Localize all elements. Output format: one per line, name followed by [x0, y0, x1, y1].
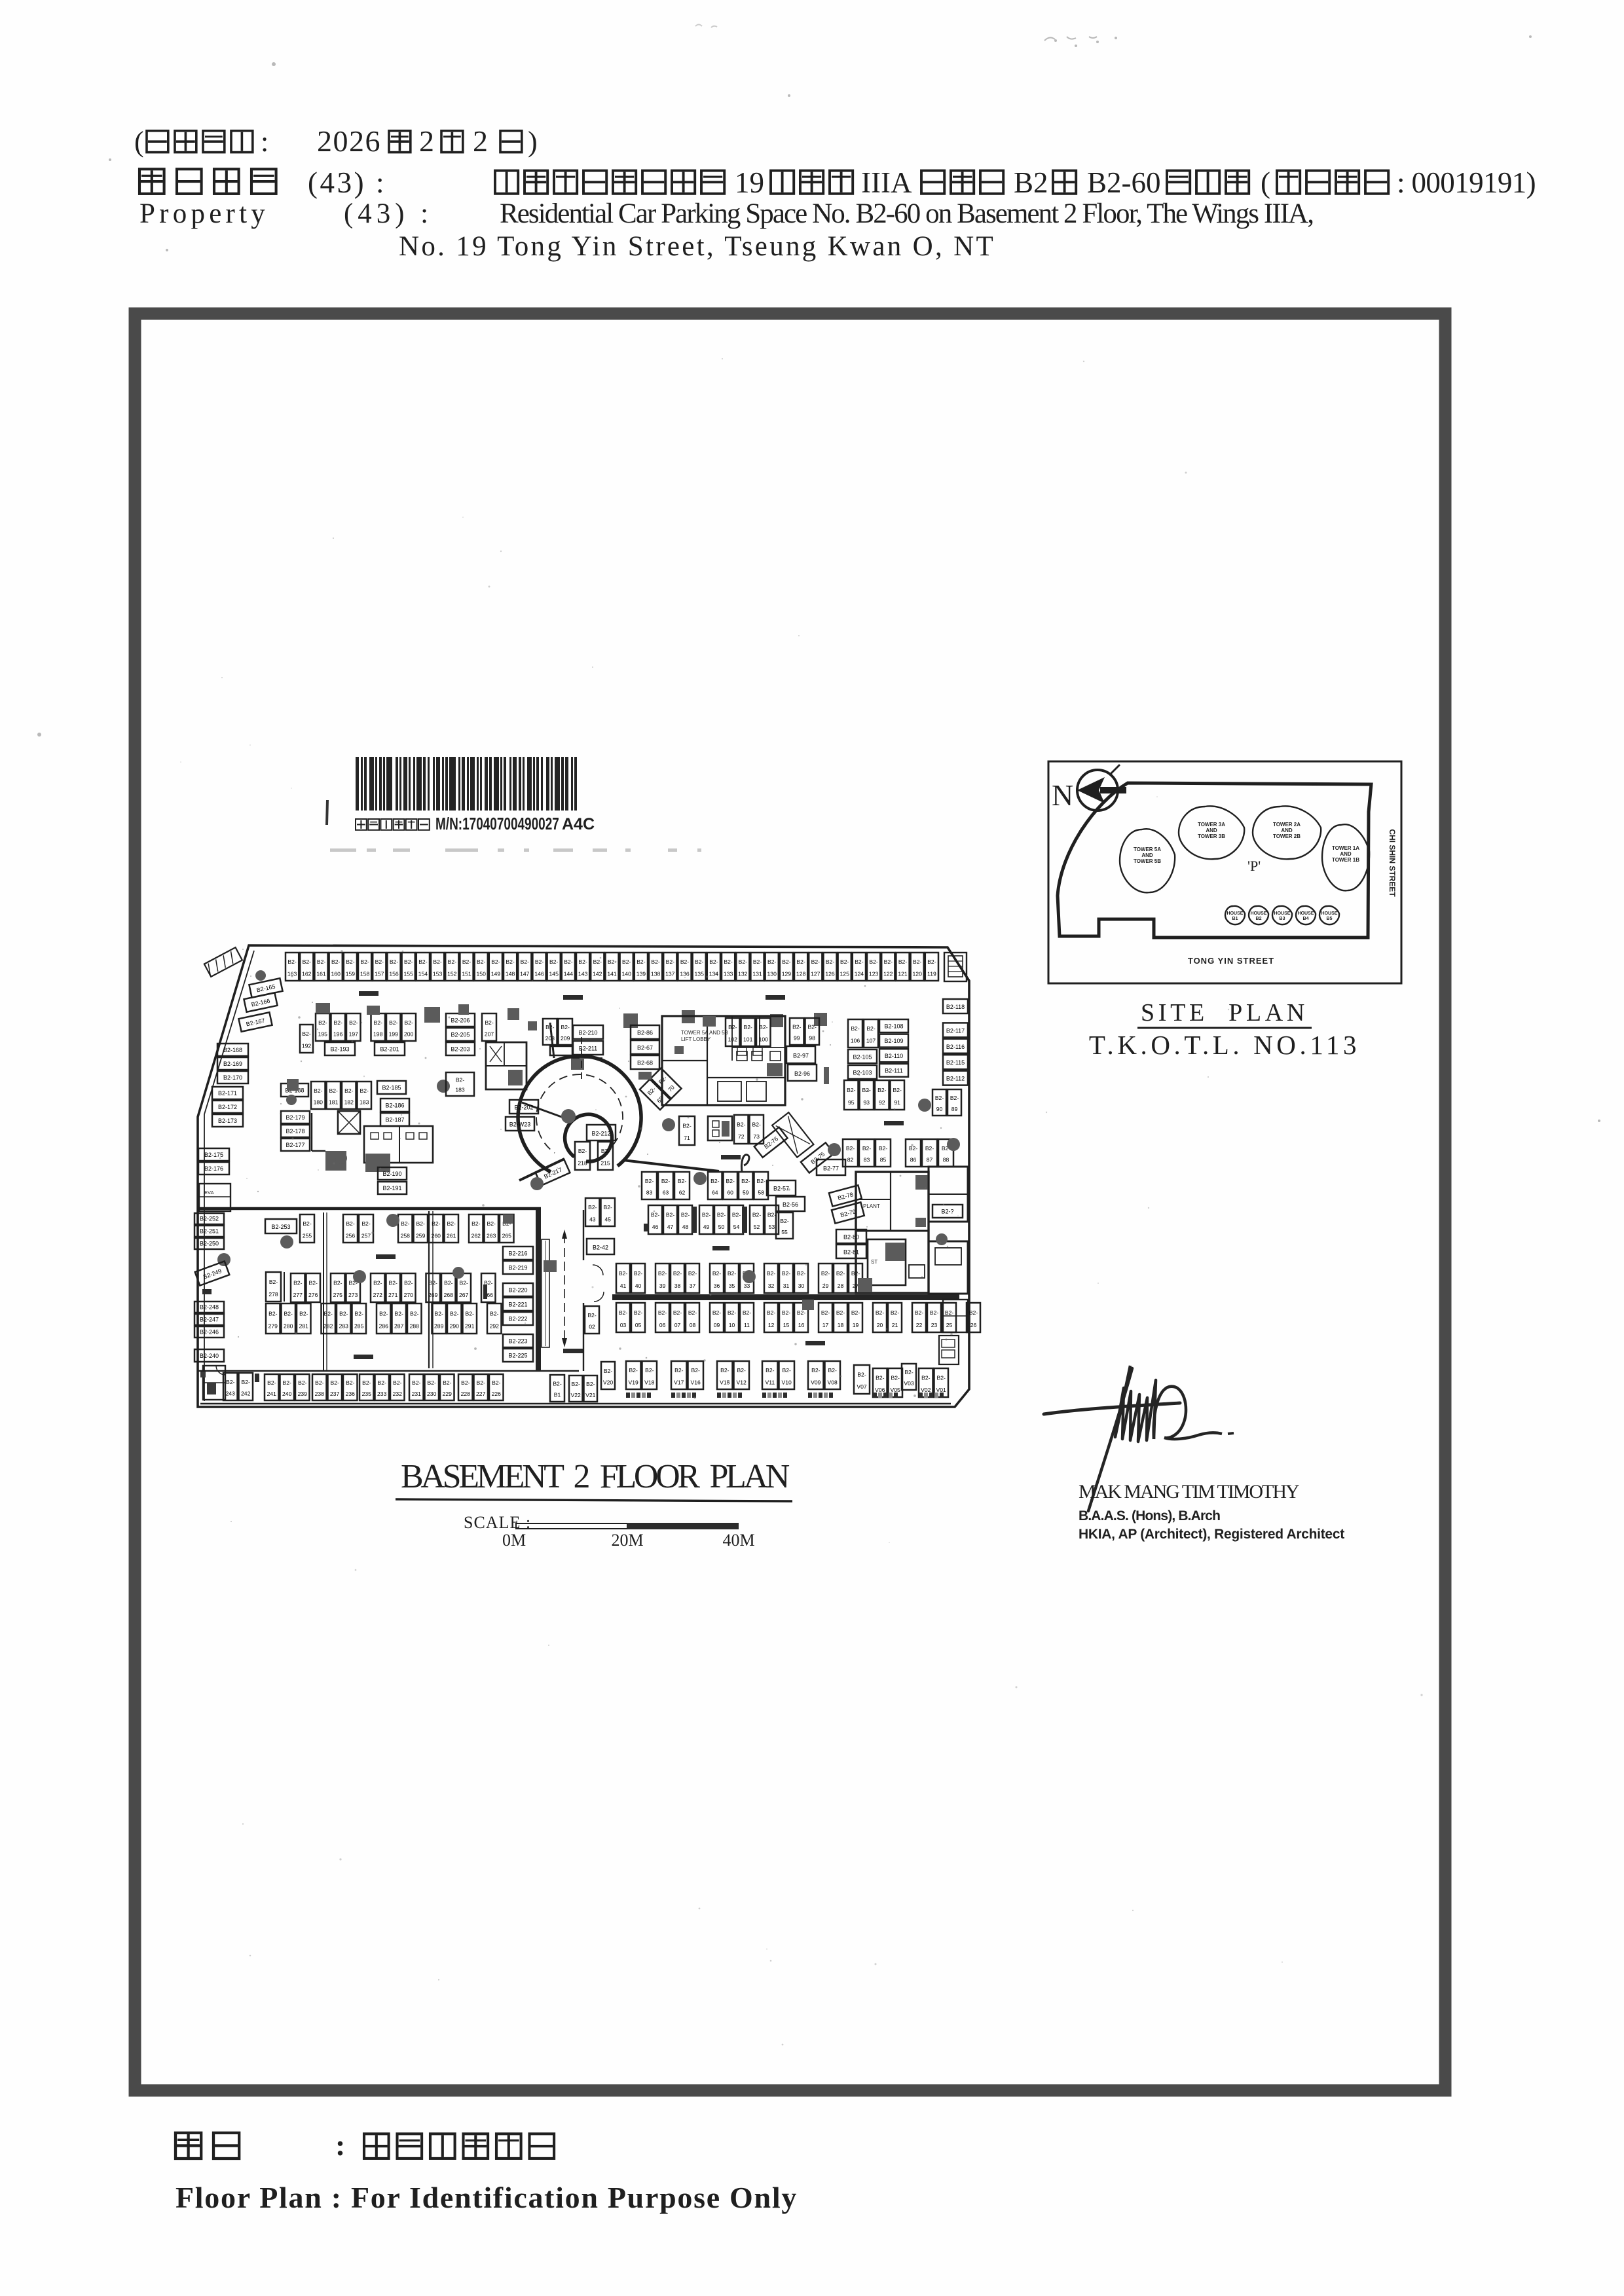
svg-text:B2-: B2-: [869, 958, 878, 965]
svg-text:272: 272: [373, 1292, 383, 1298]
svg-text:181: 181: [329, 1099, 339, 1105]
svg-text:B2-173: B2-173: [218, 1118, 237, 1124]
svg-text:B2-: B2-: [374, 1019, 383, 1026]
svg-text:B2-: B2-: [710, 1178, 720, 1184]
svg-text:126: 126: [825, 970, 835, 977]
svg-text:55: 55: [781, 1229, 788, 1235]
svg-text:146: 146: [534, 970, 544, 977]
svg-text:B2-253: B2-253: [271, 1224, 290, 1230]
svg-text:238: 238: [315, 1391, 325, 1397]
svg-text:B2-117: B2-117: [946, 1027, 965, 1034]
svg-text:72: 72: [738, 1133, 745, 1140]
svg-text:B2-: B2-: [909, 1145, 918, 1152]
svg-text:B2-: B2-: [634, 1309, 643, 1316]
svg-text:119: 119: [927, 970, 936, 977]
svg-text:B2-: B2-: [395, 1310, 404, 1317]
svg-text:B2-: B2-: [443, 1379, 452, 1386]
svg-text:B2-: B2-: [433, 958, 442, 965]
svg-text:132: 132: [738, 970, 748, 977]
svg-text:2: 2: [473, 124, 488, 158]
svg-text:BASEMENT 2 FLOOR PLAN: BASEMENT 2 FLOOR PLAN: [401, 1458, 790, 1495]
svg-text:B2-: B2-: [456, 1076, 465, 1083]
svg-text:B2-115: B2-115: [946, 1059, 965, 1066]
svg-text:B2-: B2-: [390, 958, 399, 965]
svg-text:B2-: B2-: [821, 1270, 830, 1277]
svg-text:B2-: B2-: [847, 1087, 856, 1093]
svg-text:140: 140: [622, 970, 632, 977]
svg-text:B2-: B2-: [302, 1030, 311, 1037]
svg-text:B2-: B2-: [674, 1367, 684, 1374]
svg-text:B2-108: B2-108: [884, 1023, 903, 1030]
svg-text:06: 06: [659, 1322, 666, 1328]
svg-text:B2-: B2-: [876, 1375, 885, 1381]
svg-text:B2-: B2-: [712, 1270, 722, 1277]
svg-text:TOWER 3A: TOWER 3A: [1198, 822, 1225, 828]
svg-text:48: 48: [682, 1224, 689, 1230]
svg-text:V10: V10: [782, 1379, 792, 1385]
svg-text:B2-: B2-: [593, 958, 602, 965]
svg-text:130: 130: [767, 970, 777, 977]
svg-text:B2-96: B2-96: [794, 1070, 810, 1077]
svg-text:IIIA: IIIA: [861, 166, 912, 199]
svg-text:(: (: [1261, 166, 1270, 199]
svg-text:218: 218: [578, 1159, 587, 1166]
svg-text:TOWER 1A: TOWER 1A: [1332, 845, 1359, 851]
svg-text:262: 262: [471, 1232, 481, 1239]
svg-text:V07: V07: [857, 1383, 867, 1390]
svg-text:B2-: B2-: [450, 1310, 459, 1317]
svg-text:32: 32: [768, 1283, 775, 1289]
svg-text:120: 120: [913, 970, 923, 977]
svg-text:261: 261: [447, 1232, 456, 1239]
svg-text:B2-: B2-: [688, 1270, 697, 1277]
svg-text:B2-: B2-: [743, 1309, 752, 1316]
svg-text:156: 156: [389, 970, 399, 977]
svg-text:278: 278: [268, 1291, 278, 1298]
svg-text:B2-: B2-: [471, 1220, 481, 1227]
svg-text:47: 47: [667, 1224, 674, 1230]
svg-text:B2: B2: [1256, 917, 1262, 921]
svg-text:B2-: B2-: [678, 1178, 687, 1184]
svg-text:122: 122: [883, 970, 893, 977]
svg-text:Residential Car Parking Space: Residential Car Parking Space No. B2-60 …: [500, 198, 1313, 229]
svg-text:133: 133: [724, 970, 733, 977]
svg-text:B2-118: B2-118: [946, 1004, 965, 1010]
svg-text:235: 235: [362, 1391, 372, 1397]
svg-text:B2-: B2-: [462, 958, 471, 965]
svg-text:17: 17: [822, 1322, 829, 1328]
svg-text:285: 285: [354, 1323, 364, 1330]
svg-text:B2-: B2-: [588, 1204, 597, 1211]
svg-text:101: 101: [743, 1036, 753, 1042]
svg-text:B2-68: B2-68: [637, 1059, 653, 1066]
svg-text:B2-: B2-: [284, 1310, 293, 1317]
svg-text:141: 141: [607, 970, 617, 977]
svg-text:B2-112: B2-112: [946, 1076, 965, 1082]
svg-text:83: 83: [646, 1189, 653, 1195]
svg-text:139: 139: [637, 970, 646, 977]
svg-text:B2-: B2-: [444, 1280, 453, 1286]
svg-text:B2-: B2-: [666, 1212, 675, 1218]
svg-text:HOUSE: HOUSE: [1298, 911, 1314, 916]
svg-text:B2-: B2-: [506, 958, 515, 965]
svg-text:182: 182: [344, 1099, 354, 1105]
svg-text:B2-: B2-: [728, 1270, 737, 1277]
svg-text:92: 92: [879, 1099, 885, 1106]
svg-text:B2-222: B2-222: [508, 1316, 527, 1322]
svg-text:277: 277: [293, 1292, 303, 1298]
svg-text:B2-: B2-: [362, 1379, 371, 1386]
svg-text:B2-: B2-: [891, 1375, 900, 1381]
svg-text::: :: [261, 126, 268, 158]
svg-text:B2-: B2-: [752, 1212, 762, 1218]
svg-text:B2-212: B2-212: [591, 1130, 610, 1137]
svg-text:B2-: B2-: [877, 1087, 887, 1093]
svg-text:B2-: B2-: [826, 958, 835, 965]
svg-text:145: 145: [549, 970, 559, 977]
svg-text:B2-: B2-: [410, 1310, 419, 1317]
svg-text:290: 290: [450, 1323, 460, 1330]
svg-text:B2-97: B2-97: [793, 1053, 809, 1059]
svg-text:26: 26: [970, 1322, 977, 1328]
svg-text:54: 54: [733, 1224, 740, 1230]
svg-text:B2-57: B2-57: [773, 1186, 789, 1192]
svg-text:259: 259: [416, 1232, 426, 1239]
svg-text:B2-: B2-: [846, 1145, 855, 1152]
svg-text:AND: AND: [1141, 852, 1153, 858]
svg-text:281: 281: [299, 1323, 309, 1330]
svg-text:B2-: B2-: [797, 1309, 806, 1316]
svg-text:B2-168: B2-168: [223, 1047, 242, 1053]
svg-text:B2-246: B2-246: [200, 1329, 219, 1336]
svg-text:B2-216: B2-216: [508, 1250, 527, 1257]
svg-text:B2-: B2-: [564, 958, 573, 965]
svg-text:198: 198: [373, 1030, 383, 1037]
svg-text:TOWER 5A: TOWER 5A: [1134, 847, 1161, 852]
svg-text:B2-: B2-: [283, 1379, 292, 1386]
svg-text:Property: Property: [139, 198, 269, 229]
svg-text:B2-: B2-: [717, 1212, 726, 1218]
svg-text:B2-: B2-: [578, 1148, 587, 1154]
svg-text:B2-: B2-: [242, 1379, 251, 1385]
svg-text:263: 263: [487, 1232, 496, 1239]
svg-text:B2-: B2-: [797, 1270, 806, 1277]
svg-text:B2-: B2-: [269, 1279, 278, 1285]
svg-text:B2-187: B2-187: [385, 1117, 404, 1123]
svg-text:102: 102: [728, 1036, 738, 1042]
svg-text:B2-: B2-: [666, 958, 675, 965]
svg-text:B2-: B2-: [491, 958, 500, 965]
svg-text:30: 30: [798, 1283, 805, 1289]
svg-text:128: 128: [796, 970, 806, 977]
svg-text:B2-: B2-: [737, 1121, 746, 1128]
svg-text:B2-: B2-: [329, 1087, 339, 1094]
svg-text:N: N: [1052, 778, 1073, 812]
svg-text:V06: V06: [875, 1387, 885, 1393]
svg-text:B2-: B2-: [851, 1025, 860, 1032]
svg-text:B2-: B2-: [331, 958, 341, 965]
svg-text:B2-: B2-: [435, 1310, 444, 1317]
svg-text:SITE PLAN: SITE PLAN: [1141, 999, 1308, 1027]
svg-text:228: 228: [461, 1391, 471, 1397]
svg-text:243: 243: [226, 1390, 236, 1396]
svg-text:B2-: B2-: [709, 958, 718, 965]
svg-text:B2-: B2-: [792, 1023, 802, 1030]
svg-text:B2-: B2-: [796, 958, 805, 965]
svg-text:B2-205: B2-205: [451, 1032, 470, 1038]
svg-text:B2-: B2-: [375, 958, 384, 965]
svg-text:268: 268: [444, 1292, 454, 1298]
svg-text:B2-248: B2-248: [200, 1304, 219, 1311]
svg-text:20: 20: [877, 1322, 883, 1328]
svg-text:B2-: B2-: [428, 1379, 437, 1386]
svg-text:B2-: B2-: [879, 1145, 888, 1152]
svg-text:241: 241: [267, 1391, 277, 1397]
svg-text:B2-: B2-: [601, 1148, 610, 1154]
svg-text:41: 41: [620, 1283, 627, 1289]
svg-text:B2-: B2-: [915, 1309, 924, 1316]
svg-text:B2: B2: [1014, 166, 1048, 199]
svg-text:B2-177: B2-177: [286, 1142, 304, 1148]
svg-text:20M: 20M: [611, 1531, 643, 1550]
svg-text:B2-: B2-: [898, 958, 908, 965]
svg-text:B2-: B2-: [331, 1379, 340, 1386]
svg-text:B2-: B2-: [767, 1270, 776, 1277]
svg-text:B2-: B2-: [448, 958, 457, 965]
svg-text:B2-: B2-: [226, 1379, 235, 1385]
svg-text:B2-221: B2-221: [508, 1302, 527, 1308]
svg-text:144: 144: [564, 970, 574, 977]
svg-text:288: 288: [410, 1323, 420, 1330]
svg-text:TONG YIN STREET: TONG YIN STREET: [1188, 956, 1274, 966]
svg-text:TOWER 2A: TOWER 2A: [1273, 822, 1301, 828]
svg-text:B2-60: B2-60: [1087, 166, 1161, 199]
svg-text:B2-: B2-: [293, 1280, 303, 1286]
svg-text:V20: V20: [603, 1379, 614, 1385]
svg-text:71: 71: [684, 1135, 690, 1141]
svg-text:V01: V01: [936, 1387, 947, 1393]
svg-text:B2-252: B2-252: [200, 1216, 219, 1222]
svg-text:B2-: B2-: [334, 1019, 343, 1026]
svg-text:86: 86: [910, 1156, 917, 1163]
svg-text:B2-: B2-: [619, 1309, 628, 1316]
svg-text:82: 82: [847, 1156, 854, 1163]
svg-text:B2-: B2-: [645, 1178, 654, 1184]
svg-text:60: 60: [727, 1189, 733, 1195]
svg-text:B2-: B2-: [477, 1379, 486, 1386]
svg-text:B2-111: B2-111: [885, 1067, 903, 1074]
svg-text:B2-176: B2-176: [204, 1165, 223, 1172]
svg-text:05: 05: [635, 1322, 642, 1328]
svg-text:B2-: B2-: [477, 958, 486, 965]
svg-text:V08: V08: [828, 1379, 838, 1385]
svg-text:B2-: B2-: [937, 1375, 946, 1381]
svg-text:157: 157: [375, 970, 384, 977]
svg-text:B2-: B2-: [891, 1309, 900, 1316]
svg-text:209: 209: [561, 1035, 570, 1042]
svg-text:B2-193: B2-193: [330, 1046, 349, 1053]
svg-text:40M: 40M: [722, 1531, 754, 1550]
svg-text:B2-: B2-: [811, 958, 821, 965]
svg-text:B2-: B2-: [267, 1379, 276, 1386]
svg-text:155: 155: [404, 970, 414, 977]
svg-text:29: 29: [822, 1283, 829, 1289]
svg-text:B2-: B2-: [309, 1280, 318, 1286]
svg-text:129: 129: [782, 970, 792, 977]
svg-text:07: 07: [674, 1322, 681, 1328]
svg-text:B2-206: B2-206: [451, 1017, 470, 1024]
svg-text:B2-: B2-: [724, 958, 733, 965]
svg-text:B2-: B2-: [767, 958, 777, 965]
svg-text:287: 287: [394, 1323, 404, 1330]
svg-text:A4C: A4C: [562, 815, 595, 833]
svg-text:63: 63: [663, 1189, 669, 1195]
svg-text:150: 150: [477, 970, 487, 977]
svg-text:B2-: B2-: [744, 1024, 753, 1030]
svg-text:100: 100: [759, 1036, 769, 1042]
svg-text:151: 151: [462, 970, 471, 977]
svg-text:158: 158: [360, 970, 370, 977]
svg-text:V03: V03: [904, 1380, 914, 1387]
svg-text:230: 230: [427, 1391, 437, 1397]
svg-text:Floor Plan : For Identificatio: Floor Plan : For Identification Purpose …: [175, 2181, 798, 2214]
svg-text:B2-: B2-: [373, 1280, 382, 1286]
svg-text:B2-: B2-: [741, 1178, 750, 1184]
svg-text:89: 89: [951, 1106, 958, 1112]
svg-text:B2-: B2-: [851, 1309, 860, 1316]
svg-text:B2-: B2-: [317, 958, 326, 965]
svg-text:B2-: B2-: [688, 1309, 697, 1316]
svg-text:B2-: B2-: [315, 1379, 324, 1386]
svg-text:B2-: B2-: [866, 1025, 876, 1032]
svg-text:289: 289: [434, 1323, 444, 1330]
svg-text:B2-: B2-: [461, 1379, 470, 1386]
svg-text:V09: V09: [811, 1379, 821, 1385]
svg-text:B2-179: B2-179: [286, 1114, 304, 1121]
svg-text:HOUSE: HOUSE: [1274, 911, 1291, 916]
svg-text:B2-: B2-: [862, 1145, 872, 1152]
svg-text:B2-: B2-: [535, 958, 544, 965]
svg-text:TOWER 2B: TOWER 2B: [1273, 833, 1301, 839]
svg-text:B2-: B2-: [840, 958, 849, 965]
svg-text:V15: V15: [720, 1379, 730, 1385]
svg-text:B2-: B2-: [333, 1280, 342, 1286]
svg-text:25: 25: [946, 1322, 953, 1328]
svg-text:19: 19: [853, 1322, 859, 1328]
svg-text:16: 16: [798, 1322, 805, 1328]
svg-text:271: 271: [388, 1292, 398, 1298]
svg-text:2026: 2026: [317, 124, 381, 158]
svg-text:B2-: B2-: [927, 958, 936, 965]
svg-text:B2-: B2-: [389, 1019, 398, 1026]
svg-text:CHI SHIN STREET: CHI SHIN STREET: [1388, 829, 1397, 897]
svg-text:183: 183: [360, 1099, 369, 1105]
svg-text:B2-: B2-: [695, 958, 704, 965]
svg-text:226: 226: [492, 1391, 502, 1397]
svg-text:207: 207: [485, 1030, 494, 1037]
svg-text:TOWER 1B: TOWER 1B: [1332, 857, 1359, 863]
svg-text:(43) :: (43) :: [344, 198, 433, 229]
svg-text:73: 73: [753, 1133, 760, 1140]
svg-text:(43) :: (43) :: [308, 166, 386, 199]
svg-text:09: 09: [714, 1322, 720, 1328]
svg-text:03: 03: [620, 1322, 627, 1328]
svg-text:B2-: B2-: [767, 1212, 777, 1218]
svg-text:B2-: B2-: [355, 1310, 364, 1317]
svg-text:B2-: B2-: [855, 958, 864, 965]
svg-text:B2-210: B2-210: [578, 1029, 597, 1036]
svg-text:292: 292: [490, 1323, 500, 1330]
svg-text:V16: V16: [691, 1379, 701, 1385]
svg-text:98: 98: [809, 1035, 815, 1042]
svg-text:V05: V05: [891, 1387, 901, 1393]
svg-text:V12: V12: [737, 1379, 747, 1385]
svg-text:B2-: B2-: [404, 1280, 413, 1286]
svg-text:242: 242: [241, 1390, 251, 1396]
svg-text:B2-: B2-: [836, 1309, 845, 1316]
svg-text:B2-109: B2-109: [884, 1038, 903, 1044]
svg-text:258: 258: [401, 1232, 411, 1239]
svg-text:B2-: B2-: [447, 1220, 456, 1227]
svg-text:HKIA, AP (Architect), Regis: HKIA, AP (Architect), Registered Archite…: [1079, 1527, 1344, 1542]
svg-text:B2-: B2-: [393, 1379, 402, 1386]
svg-text:B2-?: B2-?: [941, 1209, 953, 1215]
svg-text:28: 28: [838, 1283, 844, 1289]
svg-text:B2-: B2-: [739, 958, 748, 965]
svg-text:B2-: B2-: [681, 1212, 690, 1218]
svg-text:B2-: B2-: [783, 1367, 792, 1374]
svg-text:147: 147: [520, 970, 530, 977]
svg-text:B2-: B2-: [658, 1270, 667, 1277]
svg-text:233: 233: [377, 1391, 387, 1397]
svg-text:B2-: B2-: [702, 1212, 711, 1218]
svg-text:B1: B1: [1232, 917, 1238, 921]
svg-text:123: 123: [869, 970, 879, 977]
svg-text:B2-: B2-: [549, 958, 559, 965]
svg-text:HOUSE: HOUSE: [1251, 911, 1267, 916]
svg-text:B2-: B2-: [324, 1310, 333, 1317]
svg-text:B2-: B2-: [412, 1379, 421, 1386]
svg-text:53: 53: [769, 1224, 775, 1230]
svg-text:HOUSE: HOUSE: [1227, 911, 1244, 916]
svg-text:88: 88: [943, 1156, 950, 1163]
svg-text:B2-: B2-: [893, 1087, 902, 1093]
svg-text:B2-: B2-: [622, 958, 631, 965]
svg-text:B2-175: B2-175: [204, 1152, 223, 1158]
svg-text:192: 192: [302, 1042, 312, 1049]
svg-text:11: 11: [744, 1322, 750, 1328]
svg-text:38: 38: [674, 1283, 681, 1289]
svg-text:90: 90: [936, 1106, 943, 1112]
svg-text:V17: V17: [674, 1379, 684, 1385]
svg-text:279: 279: [268, 1323, 278, 1330]
svg-text:276: 276: [308, 1292, 318, 1298]
svg-text:B2-: B2-: [492, 1379, 501, 1386]
svg-text:B2-: B2-: [945, 1309, 954, 1316]
svg-text:99: 99: [794, 1035, 800, 1042]
svg-text:PLANT: PLANT: [863, 1203, 880, 1209]
svg-text:256: 256: [346, 1232, 356, 1239]
svg-text:B2-: B2-: [780, 1218, 789, 1224]
svg-text:V21: V21: [585, 1392, 596, 1398]
svg-text:B2-56: B2-56: [783, 1201, 798, 1208]
svg-text:B2-247: B2-247: [200, 1317, 219, 1323]
svg-text:106: 106: [851, 1037, 860, 1044]
svg-text:B2-: B2-: [487, 1220, 496, 1227]
svg-text:B2-: B2-: [808, 1023, 817, 1030]
svg-text:35: 35: [729, 1283, 735, 1289]
svg-text:M/N:17040700490027: M/N:17040700490027: [435, 814, 559, 833]
